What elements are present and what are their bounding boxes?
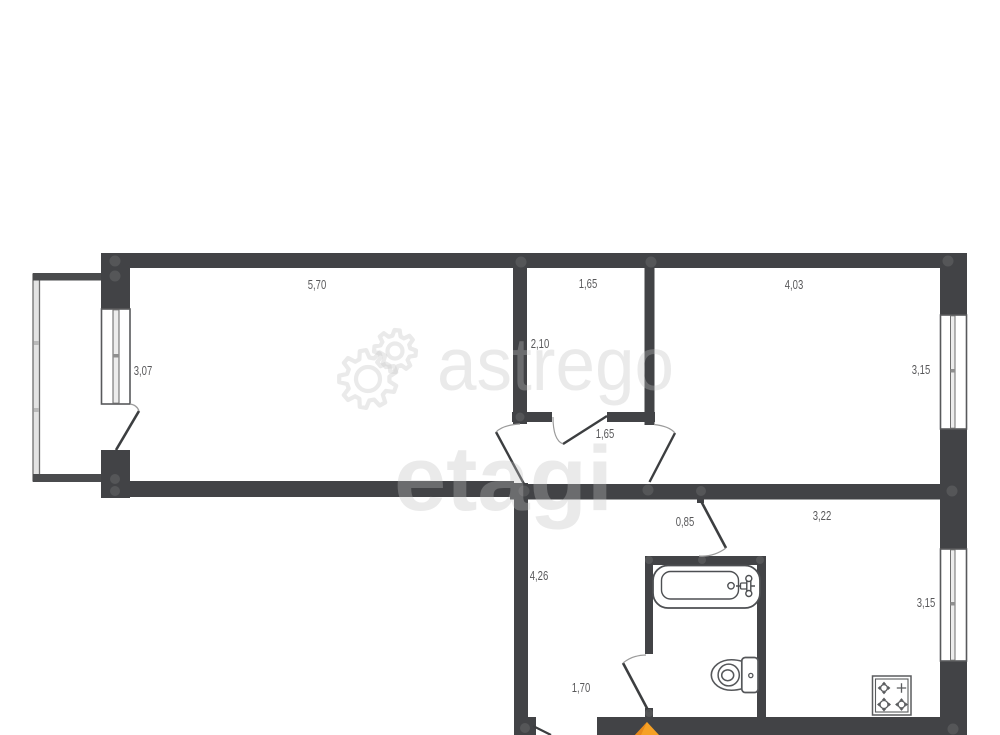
svg-text:astrego: astrego xyxy=(437,322,674,406)
svg-text:1,70: 1,70 xyxy=(572,680,591,695)
svg-text:3,07: 3,07 xyxy=(134,363,153,378)
svg-text:4,26: 4,26 xyxy=(530,568,549,583)
svg-text:0,85: 0,85 xyxy=(676,514,695,529)
svg-text:3,15: 3,15 xyxy=(912,362,931,377)
svg-text:3,15: 3,15 xyxy=(917,595,936,610)
svg-text:3,22: 3,22 xyxy=(813,508,832,523)
svg-text:etagi: etagi xyxy=(394,428,613,530)
svg-text:5,70: 5,70 xyxy=(308,277,327,292)
svg-text:1,65: 1,65 xyxy=(579,276,598,291)
svg-text:4,03: 4,03 xyxy=(785,277,804,292)
